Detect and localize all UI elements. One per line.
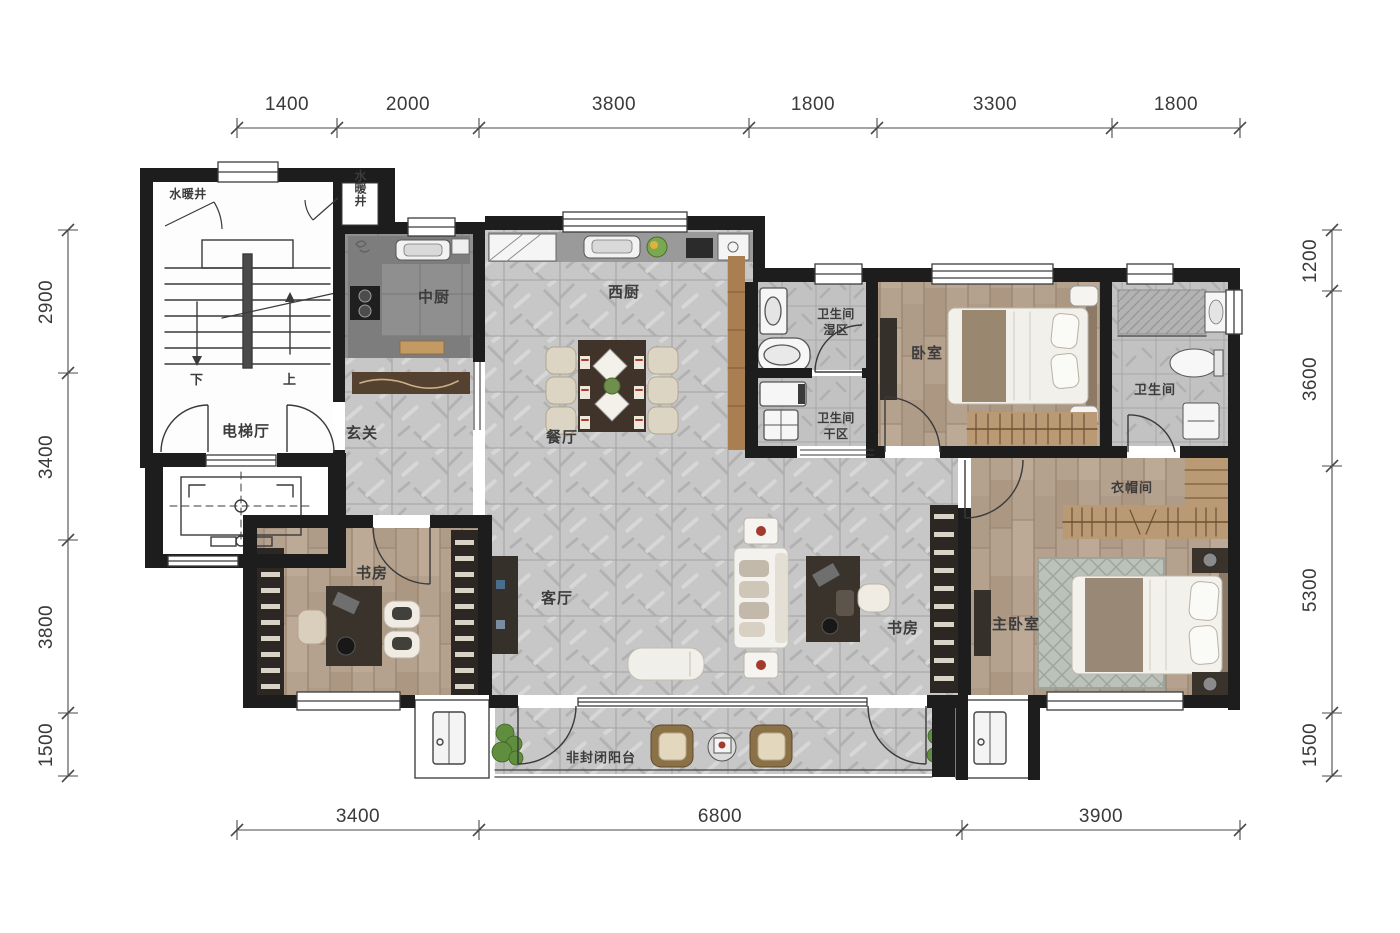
dim-right-3: 1500 bbox=[1300, 723, 1321, 767]
label-dining: 餐厅 bbox=[546, 428, 578, 446]
window bbox=[408, 218, 455, 236]
elevator bbox=[170, 472, 312, 546]
label-chinese-kitchen: 中厨 bbox=[418, 288, 450, 306]
label-shaft-left: 水暖井 bbox=[169, 186, 207, 201]
label-study-open: 书房 bbox=[887, 619, 919, 637]
cooktop bbox=[686, 238, 713, 258]
dining-set bbox=[546, 340, 678, 434]
label-balcony: 非封闭阳台 bbox=[566, 750, 636, 765]
dim-top-4: 3300 bbox=[973, 94, 1017, 115]
desk-chair bbox=[298, 610, 326, 644]
dim-bottom-2: 3900 bbox=[1079, 806, 1123, 827]
cutting-board bbox=[400, 341, 444, 354]
window bbox=[1226, 290, 1242, 334]
tv-console bbox=[880, 318, 897, 400]
dim-bottom-1: 6800 bbox=[698, 806, 742, 827]
label-bath-dry-1: 卫生间 bbox=[817, 410, 855, 425]
window bbox=[206, 455, 276, 466]
shower bbox=[1118, 290, 1206, 334]
label-bath-dry-2: 干区 bbox=[823, 427, 848, 441]
dim-left bbox=[58, 224, 78, 782]
dim-left-0: 2900 bbox=[36, 280, 57, 324]
sliding-door bbox=[474, 362, 480, 430]
window bbox=[932, 264, 1053, 284]
dim-top-0: 1400 bbox=[265, 94, 309, 115]
label-stairs-up: 上 bbox=[283, 372, 297, 387]
dim-left-2: 3800 bbox=[36, 605, 57, 649]
window bbox=[168, 556, 238, 566]
dim-top-5: 1800 bbox=[1154, 94, 1198, 115]
dim-bottom-0: 3400 bbox=[336, 806, 380, 827]
tv-console bbox=[974, 590, 991, 656]
dim-left-3: 1500 bbox=[36, 723, 57, 767]
tv-console bbox=[492, 556, 518, 654]
label-west-kitchen: 西厨 bbox=[608, 284, 640, 301]
label-bath-wet-1: 卫生间 bbox=[817, 306, 855, 321]
glass-wall bbox=[578, 698, 867, 706]
label-master-bedroom: 主卧室 bbox=[992, 615, 1040, 633]
window bbox=[1127, 264, 1173, 284]
chaise-lounge bbox=[628, 648, 704, 680]
label-bedroom: 卧室 bbox=[911, 344, 943, 362]
dim-top-2: 3800 bbox=[592, 94, 636, 115]
label-stairs-down: 下 bbox=[190, 372, 204, 387]
dim-right-1: 3600 bbox=[1300, 357, 1321, 401]
label-bath-wet-2: 湿区 bbox=[823, 322, 848, 337]
nightstand bbox=[1070, 286, 1098, 306]
label-foyer: 玄关 bbox=[346, 424, 378, 442]
dim-top bbox=[231, 118, 1246, 138]
window bbox=[297, 692, 400, 710]
label-elevator-hall: 电梯厅 bbox=[222, 422, 270, 440]
floorplan-drawing: 水暖井 水暖井 电梯厅 下 上 中厨 西厨 玄关 餐厅 客厅 书房 书房 卫生间… bbox=[0, 0, 1400, 933]
sliding-door bbox=[800, 450, 874, 455]
window bbox=[218, 162, 278, 182]
dim-right-2: 5300 bbox=[1300, 568, 1321, 612]
window bbox=[563, 212, 687, 232]
wardrobe bbox=[1185, 458, 1228, 508]
label-bathroom: 卫生间 bbox=[1134, 382, 1176, 397]
west-kitchen-counter bbox=[488, 232, 753, 262]
pantry-cabinet bbox=[728, 256, 745, 450]
window bbox=[815, 264, 862, 284]
toilet bbox=[1170, 349, 1218, 377]
dim-right-0: 1200 bbox=[1300, 239, 1321, 283]
window bbox=[1047, 692, 1183, 710]
dim-left-1: 3400 bbox=[36, 435, 57, 479]
dim-top-3: 1800 bbox=[791, 94, 835, 115]
dim-right bbox=[1322, 224, 1342, 782]
label-cloakroom: 衣帽间 bbox=[1111, 480, 1153, 495]
floorplan-page: 水暖井 水暖井 电梯厅 下 上 中厨 西厨 玄关 餐厅 客厅 书房 书房 卫生间… bbox=[0, 0, 1400, 933]
label-shaft-top: 水暖井 bbox=[353, 168, 367, 207]
desk bbox=[326, 586, 382, 666]
label-living: 客厅 bbox=[540, 589, 573, 607]
label-study-left: 书房 bbox=[356, 564, 388, 582]
desk-chair bbox=[858, 584, 890, 612]
dim-top-1: 2000 bbox=[386, 94, 430, 115]
